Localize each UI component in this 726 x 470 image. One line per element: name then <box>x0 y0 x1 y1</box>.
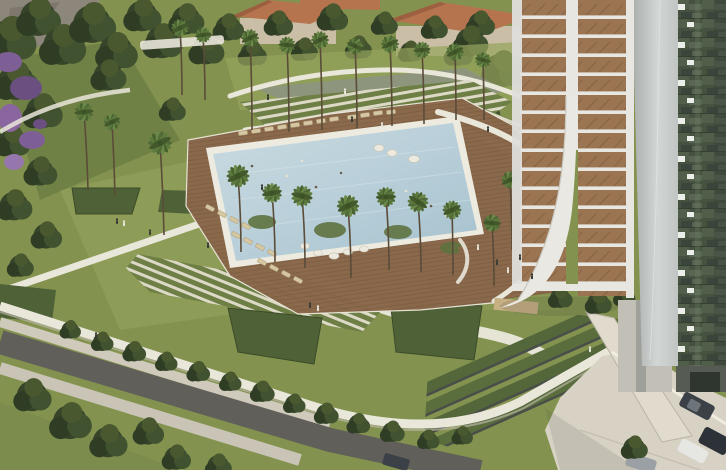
cyclist <box>95 332 97 338</box>
rendering-image <box>0 0 726 470</box>
tower-mullion <box>626 0 634 298</box>
tower-edge <box>512 0 522 286</box>
tower-balconies <box>578 0 626 296</box>
